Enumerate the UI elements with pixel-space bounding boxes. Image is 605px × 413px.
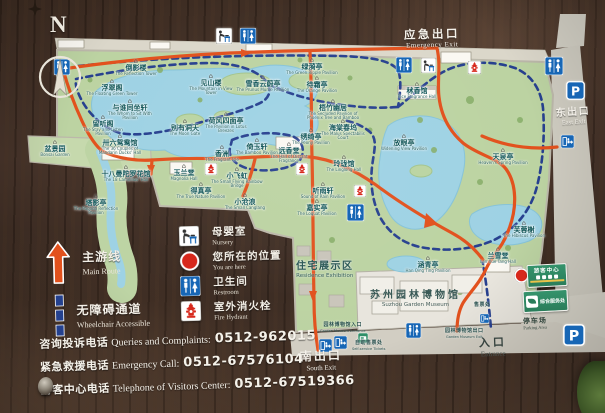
parking-icon: P [566,81,585,100]
park-map-sign-photo: N 应急出口 Emergency Exit 东出口 East Exit 南出口 … [0,0,605,413]
legend-you-are-here: 您所在的位置 You are here [179,249,281,272]
map-label: 兰雪堂Lan Xue Tang Hall [471,246,525,264]
fire-hydrant-icon [181,301,202,322]
self-ticket-label: 自助售票处 Self-service Tickets [352,341,385,351]
restroom-icon [180,276,201,297]
map-label: 涵青亭Han Qing Ting Pavilion [401,255,455,273]
visitor-center-sign: 游客中心 [526,263,567,288]
exit-icon [480,314,489,323]
map-label: 秫香馆Rice Fragrance Hall [390,81,444,99]
museum-exit-label: 园林博物馆出口 Garden Museum Exit [445,329,484,339]
compass-star-icon [28,2,42,16]
map-label: 芙蓉榭The Hibiscus Pavilion [497,220,551,238]
map-label: 香洲The Fragrant Isle [195,144,249,162]
fire-hydrant-icon [205,163,217,175]
map-label: 小沧浪The Small Canglang [218,192,272,210]
nursery-icon [216,28,232,44]
east-exit-label: 东出口 East Exit [555,106,591,127]
fire-hydrant-icon [296,163,308,175]
fire-hydrant-icon [354,185,366,197]
map-label: 雪香云蔚亭The Prunus Mume Pavilion [236,74,290,92]
fire-hydrant-icon [468,61,481,74]
you-are-here-icon [179,251,200,272]
restroom-icon [347,204,364,221]
parking-area-label: 停车场 Parking Area [523,317,547,331]
phone-numbers: 咨询投诉电话Queries and Complaints:0512-962015… [39,323,355,402]
nursery-icon [179,226,200,247]
map-label: 塔影亭The Pagoda Reflection Pavilion [69,193,123,216]
compass: N [22,0,112,110]
compass-dial-icon [37,52,83,100]
restroom-icon [406,323,421,338]
legend-routes: 主游线 Main Route 无障碍通道 Wheelchair Accessib… [45,239,151,339]
legend-nursery: 母婴室 Nursery [179,224,281,247]
ticket-office-label: 售票处 [474,303,491,309]
legend-restroom: 卫生间 Restroom [180,274,282,297]
service-center-sign: 综合服务处 [522,289,568,313]
svg-text:P: P [569,329,579,345]
legend-fire-hydrant: 室外消火栓 Fire Hydrant [181,299,283,322]
service-icon [526,295,539,308]
garden-museum-label: 苏州园林博物馆 Suzhou Garden Museum [370,290,461,308]
restroom-icon [396,57,412,73]
legend-facilities: 母婴室 Nursery 您所在的位置 You are here 卫生间 Rest… [179,224,283,322]
visitor-center-bar [530,279,564,283]
entrance-label: 入口 Entrance [479,337,508,359]
compass-north-letter: N [50,12,67,38]
map-label: 卅六鸳鸯馆The 36 Couples of Mandarin Ducks' H… [93,133,147,156]
map-label: 嘉实亭The Loquat Pavilion [290,198,344,216]
parking-icon: P [563,324,585,346]
restroom-icon [240,28,256,44]
map-label: 听雨轩Sound of Rain Pavilion [296,181,350,199]
svg-text:P: P [571,84,580,98]
main-route-icon [45,241,72,286]
nursery-icon [421,58,436,73]
exit-icon [561,135,574,148]
map-label: 玲珑馆The Linglong Hall [317,154,371,172]
map-label: 绿漪亭The Green Ripple Pavilion [285,57,339,75]
map-label: 倒影楼The Reflection Tower [109,58,163,76]
residence-exhibition-label: 住宅展示区 Residence Exhibition [296,261,354,279]
map-label: 盆景园Bonsai Garden [28,139,82,157]
map-label: 天泉亭Heaven's Spring Pavilion [476,147,530,165]
map-label: 见山楼The Mountain in View Tower [184,73,238,96]
restroom-icon [545,57,563,75]
map-label: 玉兰堂Magnolia Hall [157,163,211,181]
map-label: 待霜亭The Orange Pavilion [290,75,344,93]
map-label: 放眼亭Widening View Pavilion [377,133,431,151]
emergency-exit-label: 应急出口 Emergency Exit [404,27,461,50]
legend-main-route: 主游线 Main Route [45,239,149,286]
map-label: 十八曼陀罗花馆The 18 Camellias' Hall [99,164,153,182]
map-label: 荷风四面亭The Pavilion in Lotus Breezes [199,111,253,134]
